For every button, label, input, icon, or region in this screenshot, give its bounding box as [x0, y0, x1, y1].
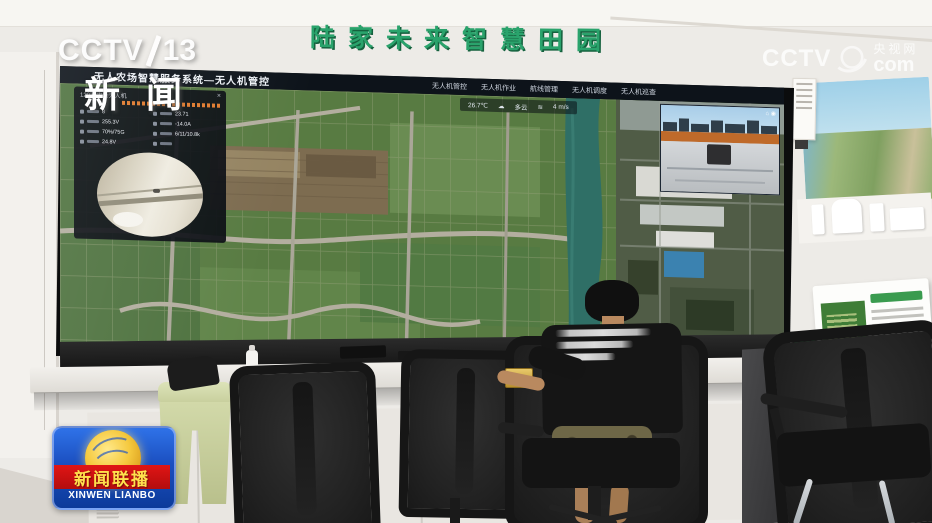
badge-red-band: 新闻联播	[54, 465, 170, 489]
news-banner: 新闻	[84, 66, 208, 118]
telemetry-value: 24.8V	[102, 139, 116, 145]
architecture-model-shelf	[797, 193, 932, 244]
channel-number: 13	[163, 34, 196, 68]
notice-label	[795, 140, 808, 149]
watermark-cctv: CCTV	[762, 45, 831, 73]
drone-camera-feed	[97, 151, 203, 238]
program-badge: 新闻联播 XINWEN LIANBO	[52, 426, 176, 510]
logo-slash	[145, 35, 161, 67]
model-building	[890, 207, 925, 231]
mural-sky	[800, 77, 932, 135]
landscape-mural	[800, 77, 932, 206]
feed-sky: ⌂ ◉	[661, 105, 779, 135]
cctv-wordmark: CCTV	[58, 34, 144, 68]
telemetry-value: -14.0A	[175, 121, 191, 127]
chair-seat	[522, 438, 680, 488]
menu-item-route-management: 航线管理	[530, 83, 558, 94]
chair-seat	[776, 423, 931, 487]
dock-platform	[661, 141, 779, 195]
news-frame: 陆家未来智慧田园	[0, 0, 932, 523]
cloud-icon: ☁	[498, 101, 505, 109]
menu-item-drone-control: 无人机管控	[432, 81, 467, 92]
office-chair	[761, 319, 932, 523]
telemetry-value: 70%/75G	[102, 129, 125, 135]
watermark-domain: com	[873, 55, 918, 75]
model-building	[811, 204, 825, 235]
badge-title: 新闻联播	[74, 465, 150, 490]
watermark-ring-icon	[835, 42, 869, 76]
telemetry-value: 255.3V	[102, 119, 119, 125]
badge-romanized: XINWEN LIANBO	[54, 490, 170, 501]
wall-sign-text: 陆家未来智慧田园	[310, 18, 710, 58]
telemetry-value: 6/11/10.8k	[175, 131, 200, 137]
hanging-notice	[791, 78, 816, 140]
weather-text: 多云	[514, 101, 527, 111]
camera-object	[153, 189, 160, 193]
model-building	[831, 198, 863, 234]
drone-dock	[707, 144, 731, 165]
temperature: 26.7℃	[468, 101, 488, 110]
keyboard	[340, 345, 386, 359]
menu-item-drone-dispatch: 无人机调度	[572, 85, 607, 96]
menu-item-drone-patrol: 无人机巡查	[621, 86, 656, 97]
chair-stem	[450, 498, 460, 523]
wind-speed: 4 m/s	[553, 104, 569, 111]
channel-logo: CCTV 13	[58, 34, 196, 68]
menu-item-drone-operation: 无人机作业	[481, 82, 516, 93]
person-torso	[541, 323, 683, 435]
office-chair	[229, 362, 381, 523]
dock-station-feed: ⌂ ◉	[660, 104, 780, 196]
feed-toolbar-icons: ⌂ ◉	[765, 110, 776, 117]
wind-icon: ≋	[537, 103, 542, 111]
board-title-bar	[870, 291, 923, 304]
cctv-com-watermark: CCTV 央视网 com	[762, 42, 918, 76]
model-building	[869, 203, 884, 232]
close-icon: ×	[217, 93, 221, 100]
